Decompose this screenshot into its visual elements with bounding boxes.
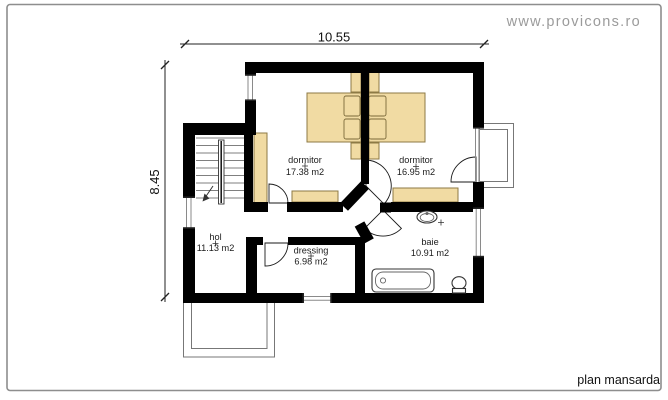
floor-plan-image: 10.55 8.45 dormitor 17.38 m2 dormitor 16… — [0, 0, 668, 400]
dresser-dormitor2 — [393, 188, 458, 202]
pillow — [344, 96, 360, 116]
dresser-dormitor1 — [292, 191, 338, 202]
door-arc-balcony — [451, 157, 476, 182]
pillow — [369, 96, 386, 116]
window-bottom-wall — [302, 293, 331, 303]
balcony-right — [479, 124, 514, 188]
room-label-dressing: dressing — [294, 246, 329, 256]
stair-direction-arrow — [206, 186, 214, 197]
room-area-dressing: 6.98 m2 — [294, 257, 327, 267]
nightstand — [369, 143, 379, 159]
floor-plan-svg: 10.55 8.45 dormitor 17.38 m2 dormitor 16… — [0, 0, 668, 400]
plan-title: plan mansarda — [577, 373, 660, 387]
nightstand — [369, 72, 379, 92]
dimension-line-left — [161, 60, 169, 302]
room-label-baie: baie — [421, 237, 438, 247]
balcony-bottom — [184, 302, 275, 357]
room-label-hol: hol — [209, 232, 221, 242]
bathtub — [372, 269, 434, 292]
room-area-dormitor1: 17.38 m2 — [286, 167, 324, 177]
room-area-baie: 10.91 m2 — [411, 248, 449, 258]
door-arc-dormitor1 — [269, 184, 288, 203]
dimension-left-label: 8.45 — [147, 169, 162, 194]
toilet — [452, 277, 466, 293]
wardrobe-dormitor1 — [254, 133, 267, 203]
sink — [417, 211, 437, 223]
nightstand — [351, 143, 361, 159]
window-upper-left — [245, 74, 256, 101]
pillow — [344, 119, 360, 139]
nightstand — [351, 72, 361, 92]
room-area-dormitor2: 16.95 m2 — [397, 167, 435, 177]
pillow — [369, 119, 386, 139]
dimension-top-label: 10.55 — [318, 30, 351, 45]
door-arc-dormitor2 — [366, 160, 391, 204]
room-label-dormitor2: dormitor — [399, 155, 433, 165]
staircase — [196, 138, 246, 204]
room-label-dormitor1: dormitor — [288, 155, 322, 165]
door-arc-dressing — [265, 243, 288, 266]
window-baie — [473, 207, 484, 257]
window-left-wall — [183, 196, 195, 228]
watermark-text: www.provicons.ro — [506, 14, 641, 30]
room-area-hol: 11.13 m2 — [197, 243, 235, 253]
